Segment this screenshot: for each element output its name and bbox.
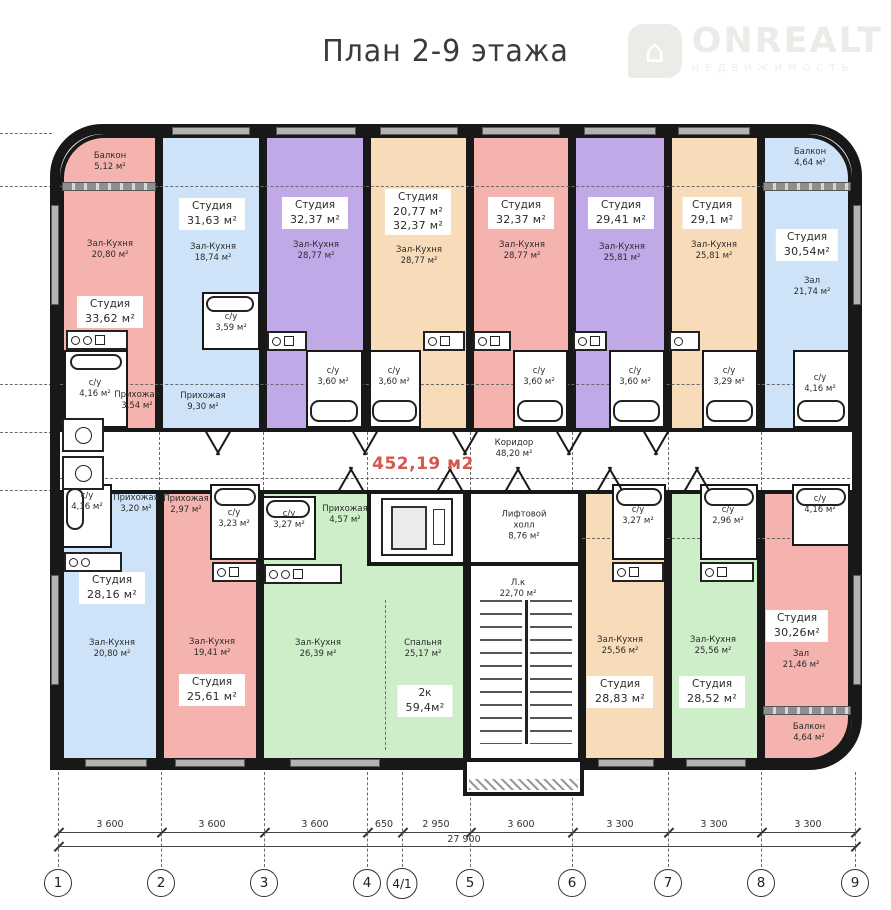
axis-circle-2: 2 <box>147 869 175 897</box>
stairs-divider <box>525 600 528 744</box>
stairs-flight-icon <box>530 600 572 744</box>
room-name: Балкон <box>94 151 126 162</box>
label-b4-wc: с/у3,27 м² <box>622 505 653 527</box>
room-area: 4,64 м² <box>794 158 825 169</box>
label-b6-balcony: Балкон4,64 м² <box>793 722 825 744</box>
bathtub-icon <box>517 400 563 422</box>
hatch-strip <box>469 779 578 790</box>
door-swing-icon <box>597 466 623 490</box>
room-area: 19,41 м² <box>194 648 231 659</box>
balcony-glazing <box>62 182 156 191</box>
dim-segment: 3 300 <box>606 819 633 830</box>
dim-segment: 3 600 <box>198 819 225 830</box>
bathtub-icon <box>797 400 845 422</box>
label-t7-unit: Студия29,1 м² <box>683 197 742 229</box>
room-area: 3,60 м² <box>317 377 348 388</box>
room-area: 25,56 м² <box>695 646 732 657</box>
axis-circle-4-1: 4/1 <box>387 868 418 899</box>
label-b2-unit: Студия25,61 м² <box>179 674 245 706</box>
label-b2-entry: Прихожая2,97 м² <box>163 494 209 516</box>
kitchen-stove-icon <box>700 562 754 582</box>
unit-area: 33,62 м² <box>85 312 135 326</box>
label-t8-wc: с/у4,16 м² <box>804 373 835 395</box>
room-area: 28,77 м² <box>298 251 335 262</box>
window-strip <box>51 575 59 685</box>
kitchen-stove-icon <box>573 331 607 351</box>
unit-area: 32,37 м² <box>496 213 546 227</box>
window-strip <box>276 127 356 135</box>
label-b1-hall: Зал-Кухня20,80 м² <box>89 638 135 660</box>
label-b3-wc: с/у3,27 м² <box>273 509 304 531</box>
label-t5-wc: с/у3,60 м² <box>523 366 554 388</box>
window-strip <box>482 127 560 135</box>
dimension-line <box>58 832 855 833</box>
label-stairwell: Л.к22,70 м² <box>500 578 537 600</box>
room-name: с/у <box>629 366 642 377</box>
stair-landing <box>463 758 584 796</box>
dim-segment: 3 600 <box>301 819 328 830</box>
door-swing-icon <box>556 432 582 456</box>
axis-extension <box>367 772 368 867</box>
kitchen-stove-icon <box>473 331 511 351</box>
unit-area: 30,54м² <box>784 245 830 259</box>
unit-area: 29,41 м² <box>596 213 646 227</box>
label-t2-entry: Прихожая9,30 м² <box>180 391 226 413</box>
room-name: Зал <box>804 276 820 287</box>
room-area: 4,16 м² <box>804 384 835 395</box>
door-swing-icon <box>205 432 231 456</box>
room-area: 2,96 м² <box>712 516 743 527</box>
bathtub-icon <box>310 400 358 422</box>
room-name: с/у <box>81 491 94 502</box>
room-name: с/у <box>814 373 827 384</box>
label-b3-hall: Зал-Кухня26,39 м² <box>295 638 341 660</box>
room-area: 18,74 м² <box>195 253 232 264</box>
washer-icon <box>62 418 104 452</box>
unit-name: Студия <box>192 200 232 214</box>
unit-area2: 32,37 м² <box>393 219 443 233</box>
floor-plan-page: План 2-9 этажа ⌂ ONREALT НЕДВИЖИМОСТЬ <box>0 0 891 910</box>
room-name: Балкон <box>793 722 825 733</box>
axis-extension <box>161 772 162 867</box>
axis-line <box>159 432 160 490</box>
apartment-t2 <box>159 134 263 432</box>
window-strip <box>172 127 250 135</box>
room-name: Прихожая <box>322 504 368 515</box>
label-t1-unit: Студия33,62 м² <box>77 296 143 328</box>
room-area: 22,70 м² <box>500 589 537 600</box>
label-b1-unit: Студия28,16 м² <box>79 572 145 604</box>
axis-line <box>761 432 762 490</box>
axis-line <box>0 133 52 134</box>
axis-circle-1: 1 <box>44 869 72 897</box>
kitchen-stove-icon <box>669 331 700 351</box>
room-name: Коридор <box>495 438 534 449</box>
unit-name: Студия <box>600 678 640 692</box>
axis-extension <box>761 772 762 867</box>
label-b4-unit: Студия28,83 м² <box>587 676 653 708</box>
label-t2-hall: Зал-Кухня18,74 м² <box>190 242 236 264</box>
label-t3-unit: Студия32,37 м² <box>282 197 348 229</box>
room-name: с/у <box>225 312 238 323</box>
label-t6-unit: Студия29,41 м² <box>588 197 654 229</box>
room-name: Зал-Кухня <box>189 637 235 648</box>
room-area: 9,30 м² <box>187 402 218 413</box>
logo-tagline: НЕДВИЖИМОСТЬ <box>692 63 883 74</box>
balcony-glazing <box>763 706 851 715</box>
kitchen-stove-icon <box>66 330 128 350</box>
room-name: Зал-Кухня <box>295 638 341 649</box>
room-area: 21,74 м² <box>794 287 831 298</box>
window-strip <box>678 127 750 135</box>
label-t4-wc: с/у3,60 м² <box>378 366 409 388</box>
axis-circle-8: 8 <box>747 869 775 897</box>
logo-text: ONREALT НЕДВИЖИМОСТЬ <box>692 24 883 74</box>
room-name: с/у <box>283 509 296 520</box>
room-name: с/у <box>632 505 645 516</box>
axis-extension <box>402 772 403 867</box>
bathtub-icon <box>613 400 660 422</box>
label-t4-hall: Зал-Кухня28,77 м² <box>396 245 442 267</box>
room-name: с/у <box>814 494 827 505</box>
room-name: с/у <box>723 366 736 377</box>
axis-extension <box>264 772 265 867</box>
unit-area: 31,63 м² <box>187 214 237 228</box>
kitchen-stove-icon <box>267 331 307 351</box>
bathtub-icon <box>206 296 254 312</box>
bathtub-icon <box>706 400 753 422</box>
dim-segment: 650 <box>375 819 393 830</box>
unit-area: 28,52 м² <box>687 692 737 706</box>
window-strip <box>85 759 147 767</box>
room-name: Прихожая <box>113 493 159 504</box>
label-t2-wc: с/у3,59 м² <box>215 312 246 334</box>
room-name: Зал-Кухня <box>396 245 442 256</box>
room-area: 5,12 м² <box>94 162 125 173</box>
unit-name: Студия <box>501 199 541 213</box>
room-name: Зал-Кухня <box>87 239 133 250</box>
window-strip <box>853 575 861 685</box>
door-swing-icon <box>643 432 669 456</box>
elevator-icon <box>381 498 453 556</box>
window-strip <box>853 205 861 305</box>
label-b2-wc: с/у3,23 м² <box>218 508 249 530</box>
room-name: Зал-Кухня <box>599 242 645 253</box>
room-area: 25,17 м² <box>405 649 442 660</box>
axis-circle-3: 3 <box>250 869 278 897</box>
label-b1-entry: Прихожая3,20 м² <box>113 493 159 515</box>
unit-area: 28,83 м² <box>595 692 645 706</box>
axis-extension <box>668 772 669 867</box>
label-lift-hall: Лифтовой холл8,76 м² <box>496 509 552 542</box>
label-t8-balcony: Балкон4,64 м² <box>794 147 826 169</box>
label-b5-hall: Зал-Кухня25,56 м² <box>690 635 736 657</box>
unit-area: 20,77 м² <box>393 205 443 219</box>
room-name: Зал-Кухня <box>293 240 339 251</box>
label-b6-unit: Студия30,26м² <box>766 610 828 642</box>
kitchen-stove-icon <box>264 564 342 584</box>
room-name: Зал-Кухня <box>690 635 736 646</box>
window-strip <box>598 759 654 767</box>
unit-area: 30,26м² <box>774 626 820 640</box>
room-area: 3,60 м² <box>619 377 650 388</box>
bathtub-icon <box>704 488 754 506</box>
unit-name: Студия <box>92 574 132 588</box>
label-t1-hall: Зал-Кухня20,80 м² <box>87 239 133 261</box>
unit-name: Студия <box>192 676 232 690</box>
room-name: Прихожая <box>180 391 226 402</box>
axis-line <box>0 432 52 433</box>
room-area: 20,80 м² <box>92 250 129 261</box>
unit-area: 25,61 м² <box>187 690 237 704</box>
room-name: Зал-Кухня <box>691 240 737 251</box>
unit-name: Студия <box>692 199 732 213</box>
label-t7-hall: Зал-Кухня25,81 м² <box>691 240 737 262</box>
door-swing-icon <box>684 466 710 490</box>
door-swing-icon <box>505 466 531 490</box>
bathtub-icon <box>372 400 417 422</box>
axis-line <box>0 186 52 187</box>
label-t6-wc: с/у3,60 м² <box>619 366 650 388</box>
unit-area: 28,16 м² <box>87 588 137 602</box>
door-swing-icon <box>452 432 478 456</box>
unit-name: Студия <box>787 231 827 245</box>
kitchen-stove-icon <box>212 562 258 582</box>
door-swing-icon <box>352 432 378 456</box>
label-t4-unit: Студия20,77 м²32,37 м² <box>385 189 451 235</box>
room-name: с/у <box>89 378 102 389</box>
room-area: 3,27 м² <box>273 520 304 531</box>
room-name: с/у <box>722 505 735 516</box>
room-name: Зал-Кухня <box>499 240 545 251</box>
room-area: 2,97 м² <box>170 505 201 516</box>
axis-line <box>0 490 52 491</box>
room-area: 26,39 м² <box>300 649 337 660</box>
unit-area: 32,37 м² <box>290 213 340 227</box>
room-name: с/у <box>228 508 241 519</box>
label-b3-entry: Прихожая4,57 м² <box>322 504 368 526</box>
unit-name: 2к <box>418 687 431 701</box>
kitchen-stove-icon <box>423 331 465 351</box>
room-area: 4,57 м² <box>329 515 360 526</box>
room-area: 3,20 м² <box>120 504 151 515</box>
axis-line <box>263 432 264 490</box>
room-name: Балкон <box>794 147 826 158</box>
label-b6-wc: с/у4,16 м² <box>804 494 835 516</box>
axis-circle-6: 6 <box>558 869 586 897</box>
room-area: 3,59 м² <box>215 323 246 334</box>
dim-segment: 2 950 <box>422 819 449 830</box>
window-strip <box>51 205 59 305</box>
kitchen-stove-icon <box>64 552 122 572</box>
axis-line <box>385 600 386 750</box>
axis-circle-9: 9 <box>841 869 869 897</box>
dimension-line <box>58 846 855 847</box>
dim-total: 27 900 <box>447 834 480 845</box>
room-area: 48,20 м² <box>496 449 533 460</box>
room-area: 8,76 м² <box>508 532 539 543</box>
room-area: 28,77 м² <box>401 256 438 267</box>
axis-extension <box>855 772 856 867</box>
axis-circle-7: 7 <box>654 869 682 897</box>
label-t1-wc: с/у4,16 м² <box>79 378 110 400</box>
unit-name: Студия <box>295 199 335 213</box>
axis-circle-4: 4 <box>353 869 381 897</box>
label-corridor: Коридор48,20 м² <box>495 438 534 460</box>
window-strip <box>686 759 746 767</box>
label-t1-entry: Прихожая3,54 м² <box>114 390 160 412</box>
room-area: 3,23 м² <box>218 519 249 530</box>
dim-segment: 3 300 <box>794 819 821 830</box>
window-strip <box>584 127 656 135</box>
onrealt-logo: ⌂ ONREALT НЕДВИЖИМОСТЬ <box>628 24 883 78</box>
label-b5-unit: Студия28,52 м² <box>679 676 745 708</box>
label-b3-bedroom: Спальня25,17 м² <box>404 638 442 660</box>
label-t6-hall: Зал-Кухня25,81 м² <box>599 242 645 264</box>
room-area: 3,29 м² <box>713 377 744 388</box>
stairs-flight-icon <box>480 600 522 744</box>
window-strip <box>290 759 380 767</box>
axis-line <box>60 186 850 187</box>
unit-area: 59,4м² <box>405 701 444 715</box>
room-area: 20,80 м² <box>94 649 131 660</box>
room-name: Прихожая <box>163 494 209 505</box>
label-b1-wc: с/у4,16 м² <box>71 491 102 513</box>
room-area: 4,64 м² <box>793 733 824 744</box>
unit-name: Студия <box>777 612 817 626</box>
label-t3-hall: Зал-Кухня28,77 м² <box>293 240 339 262</box>
room-area: 3,60 м² <box>378 377 409 388</box>
label-t3-wc: с/у3,60 м² <box>317 366 348 388</box>
label-b6-hall: Зал21,46 м² <box>783 649 820 671</box>
unit-name: Студия <box>90 298 130 312</box>
room-area: 25,56 м² <box>602 646 639 657</box>
room-name: Зал-Кухня <box>89 638 135 649</box>
window-strip <box>380 127 458 135</box>
unit-name: Студия <box>692 678 732 692</box>
unit-area: 29,1 м² <box>691 213 734 227</box>
room-area: 28,77 м² <box>504 251 541 262</box>
axis-circle-5: 5 <box>456 869 484 897</box>
room-area: 25,81 м² <box>696 251 733 262</box>
room-name: Зал <box>793 649 809 660</box>
label-total-area: 452,19 м2 <box>372 454 474 474</box>
label-t8-unit: Студия30,54м² <box>776 229 838 261</box>
washer-icon <box>62 456 104 490</box>
room-area: 4,16 м² <box>71 502 102 513</box>
axis-line <box>0 384 52 385</box>
bathtub-icon <box>616 488 662 506</box>
room-name: с/у <box>533 366 546 377</box>
dim-segment: 3 600 <box>96 819 123 830</box>
unit-name: Студия <box>601 199 641 213</box>
kitchen-stove-icon <box>612 562 664 582</box>
room-area: 3,60 м² <box>523 377 554 388</box>
dim-segment: 3 600 <box>507 819 534 830</box>
label-t5-hall: Зал-Кухня28,77 м² <box>499 240 545 262</box>
label-t5-unit: Студия32,37 м² <box>488 197 554 229</box>
label-b5-wc: с/у2,96 м² <box>712 505 743 527</box>
room-area: 3,27 м² <box>622 516 653 527</box>
label-t8-hall: Зал21,74 м² <box>794 276 831 298</box>
room-name: Зал-Кухня <box>190 242 236 253</box>
room-name: Спальня <box>404 638 442 649</box>
window-strip <box>175 759 245 767</box>
room-name: Л.к <box>511 578 525 589</box>
label-b3-unit: 2к59,4м² <box>397 685 452 717</box>
bathtub-icon <box>214 488 256 506</box>
balcony-glazing <box>763 182 851 191</box>
logo-brand: ONREALT <box>692 24 883 59</box>
bathtub-icon <box>70 354 122 370</box>
room-name: Зал-Кухня <box>597 635 643 646</box>
unit-name: Студия <box>398 191 438 205</box>
room-name: с/у <box>388 366 401 377</box>
room-area: 21,46 м² <box>783 660 820 671</box>
logo-house-pin-icon: ⌂ <box>628 24 682 78</box>
door-swing-icon <box>338 466 364 490</box>
room-name: Прихожая <box>114 390 160 401</box>
room-name: с/у <box>327 366 340 377</box>
room-name: Лифтовой холл <box>496 509 552 531</box>
label-t1-balcony: Балкон5,12 м² <box>94 151 126 173</box>
label-t7-wc: с/у3,29 м² <box>713 366 744 388</box>
label-t2-unit: Студия31,63 м² <box>179 198 245 230</box>
axis-extension <box>58 772 59 867</box>
room-area: 4,16 м² <box>79 389 110 400</box>
label-b2-hall: Зал-Кухня19,41 м² <box>189 637 235 659</box>
room-area: 25,81 м² <box>604 253 641 264</box>
room-area: 3,54 м² <box>121 401 152 412</box>
room-area: 4,16 м² <box>804 505 835 516</box>
dim-segment: 3 300 <box>700 819 727 830</box>
label-b4-hall: Зал-Кухня25,56 м² <box>597 635 643 657</box>
